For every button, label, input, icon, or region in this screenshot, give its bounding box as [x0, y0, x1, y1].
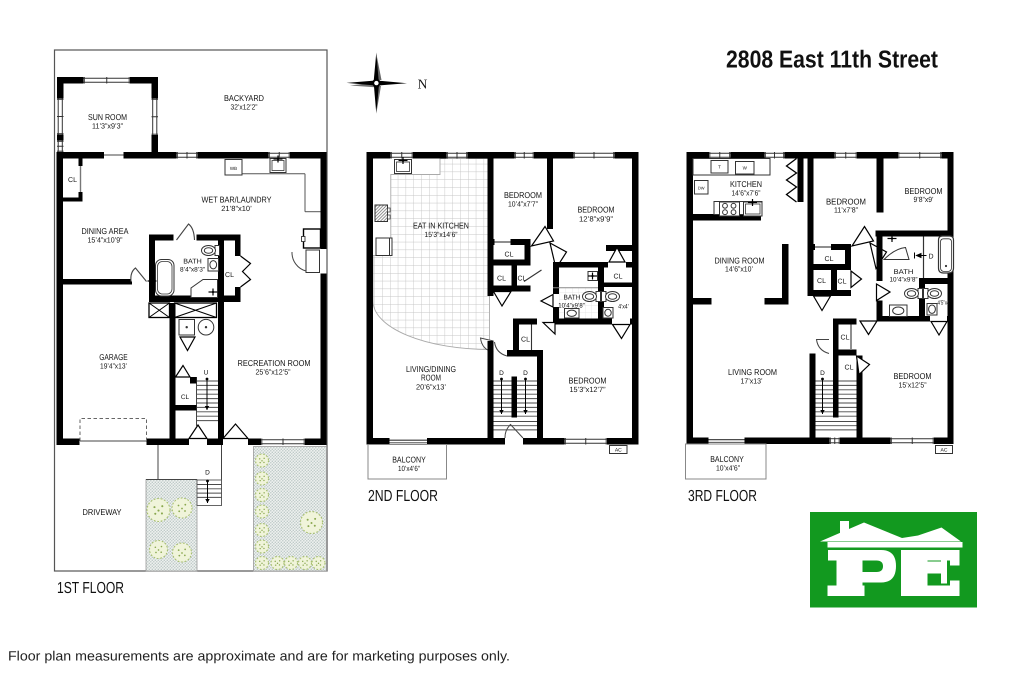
svg-text:BATH: BATH	[894, 269, 914, 276]
svg-text:SUN ROOM: SUN ROOM	[88, 112, 127, 122]
svg-text:CL: CL	[225, 272, 234, 279]
svg-text:D: D	[523, 370, 528, 377]
svg-text:10’4”x9’8”: 10’4”x9’8”	[558, 303, 585, 310]
svg-text:CL: CL	[521, 337, 530, 344]
svg-text:BATH: BATH	[183, 259, 202, 266]
svg-text:21’8”x10’: 21’8”x10’	[221, 204, 252, 213]
svg-text:DW: DW	[698, 186, 705, 191]
svg-text:15’3”x12’7”: 15’3”x12’7”	[570, 385, 606, 394]
svg-text:BEDROOM: BEDROOM	[894, 371, 932, 381]
svg-text:2ND FLOOR: 2ND FLOOR	[368, 488, 438, 505]
svg-text:CL: CL	[497, 276, 506, 283]
svg-text:U: U	[204, 370, 209, 377]
svg-text:32’x12’2”: 32’x12’2”	[231, 103, 258, 112]
svg-text:10’4”x7’7”: 10’4”x7’7”	[508, 200, 538, 209]
svg-text:17’x13’: 17’x13’	[741, 377, 763, 386]
svg-text:D: D	[820, 370, 825, 377]
svg-text:25’6”x12’5”: 25’6”x12’5”	[256, 368, 291, 377]
svg-text:Floor plan measurements are ap: Floor plan measurements are approximate …	[8, 649, 510, 664]
svg-text:10’4”x9’8”: 10’4”x9’8”	[890, 277, 918, 284]
svg-text:19’4”x13’: 19’4”x13’	[100, 362, 127, 371]
svg-text:CL: CL	[825, 256, 834, 263]
svg-text:15’3”x14’6”: 15’3”x14’6”	[425, 230, 458, 239]
svg-text:GARAGE: GARAGE	[99, 352, 128, 362]
svg-text:T: T	[718, 165, 721, 170]
svg-text:CL: CL	[614, 274, 623, 281]
svg-text:W: W	[743, 166, 748, 171]
svg-text:2808 East 11th Street: 2808 East 11th Street	[726, 47, 938, 74]
svg-text:BACKYARD: BACKYARD	[224, 93, 264, 103]
svg-text:D: D	[929, 254, 934, 261]
svg-text:8’4”x8’3”: 8’4”x8’3”	[180, 267, 205, 274]
svg-text:DINING AREA: DINING AREA	[82, 226, 129, 236]
svg-text:BEDROOM: BEDROOM	[504, 190, 542, 200]
svg-text:CL: CL	[518, 276, 527, 283]
svg-text:D: D	[499, 370, 504, 377]
svg-text:20’6”x13’: 20’6”x13’	[416, 383, 446, 392]
svg-text:DRIVEWAY: DRIVEWAY	[83, 507, 122, 517]
svg-text:AC: AC	[941, 448, 948, 454]
svg-text:CL: CL	[68, 177, 77, 184]
svg-text:CL: CL	[845, 365, 854, 372]
svg-text:11’x7’8”: 11’x7’8”	[834, 206, 858, 215]
svg-text:9’8”x9’: 9’8”x9’	[914, 195, 934, 204]
svg-text:N: N	[418, 77, 428, 92]
svg-text:WB: WB	[230, 166, 237, 171]
svg-text:BALCONY: BALCONY	[710, 454, 744, 464]
svg-text:4’x4’: 4’x4’	[618, 304, 629, 311]
svg-text:3RD FLOOR: 3RD FLOOR	[688, 488, 757, 505]
svg-text:BEDROOM: BEDROOM	[569, 376, 607, 386]
svg-text:12’8”x9’9”: 12’8”x9’9”	[579, 215, 614, 224]
svg-text:CL: CL	[817, 278, 826, 285]
svg-text:4’5”x4’: 4’5”x4’	[938, 300, 951, 307]
svg-text:LIVING ROOM: LIVING ROOM	[728, 367, 777, 377]
svg-text:CL: CL	[505, 252, 514, 259]
svg-text:1ST FLOOR: 1ST FLOOR	[57, 580, 124, 597]
svg-text:BALCONY: BALCONY	[392, 455, 426, 465]
svg-text:14’6”x7’6”: 14’6”x7’6”	[732, 189, 761, 198]
svg-text:KITCHEN: KITCHEN	[730, 179, 762, 189]
svg-text:D: D	[205, 470, 210, 477]
svg-text:ROOM: ROOM	[421, 373, 441, 383]
svg-text:CL: CL	[841, 335, 850, 342]
svg-text:15’4”x10’9”: 15’4”x10’9”	[88, 236, 123, 245]
svg-text:RECREATION ROOM: RECREATION ROOM	[238, 358, 311, 368]
svg-text:BEDROOM: BEDROOM	[578, 205, 615, 215]
svg-text:EAT IN KITCHEN: EAT IN KITCHEN	[413, 221, 469, 231]
svg-text:15’x12’5”: 15’x12’5”	[899, 381, 927, 390]
svg-text:AC: AC	[615, 448, 622, 454]
svg-text:CL: CL	[181, 394, 190, 401]
svg-text:14’6”x10’: 14’6”x10’	[725, 265, 753, 274]
svg-text:WET BAR/LAUNDRY: WET BAR/LAUNDRY	[202, 195, 272, 205]
svg-text:11’3”x9’3”: 11’3”x9’3”	[92, 122, 123, 131]
svg-text:10’x4’6”: 10’x4’6”	[716, 464, 740, 473]
svg-text:CL: CL	[838, 279, 847, 286]
svg-text:10’x4’6”: 10’x4’6”	[398, 464, 420, 473]
svg-text:BATH: BATH	[564, 295, 581, 302]
